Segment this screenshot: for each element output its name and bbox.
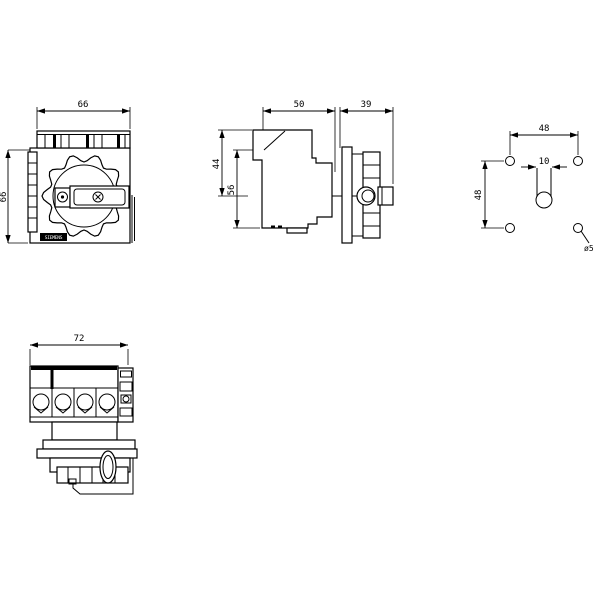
hub-screw-center: [61, 195, 64, 198]
front-view: 66 66: [0, 100, 135, 243]
dim-label-top-width: 72: [74, 334, 85, 344]
flange-plate-top: [37, 449, 137, 458]
top-view: 72: [30, 334, 137, 494]
side-body: [253, 130, 332, 228]
dim-label-pitch-v: 48: [474, 190, 484, 201]
brand-label: SIEMENS: [45, 235, 63, 241]
fixing-hole: [574, 157, 583, 166]
drawing-canvas: 66 66: [0, 0, 600, 600]
bottom-tab: [287, 228, 307, 233]
dim-label-mounting-height: 56: [227, 185, 237, 196]
drilling-pattern-view: 48 48 10 ø5: [474, 124, 594, 253]
fixing-hole: [506, 224, 515, 233]
dim-label-handle-axis: 44: [212, 159, 222, 170]
dim-label-front-height: 66: [0, 192, 9, 203]
fixing-hole: [506, 157, 515, 166]
dim-label-hole-diameter: ø5: [584, 244, 594, 253]
body-step: [52, 422, 117, 440]
handle-shaft: [357, 187, 375, 205]
handle-latch: [378, 187, 393, 205]
dimension-drawing: 66 66: [0, 0, 600, 600]
dim-label-depth-handle: 39: [361, 100, 372, 110]
foot-mark: [271, 226, 275, 229]
din-clip-strip: [28, 152, 37, 232]
dim-label-depth-body: 50: [294, 100, 305, 110]
shaft-hole: [536, 192, 552, 208]
side-view: 50 39 44 56: [212, 100, 393, 243]
terminal-block-divider-thick: [51, 370, 54, 389]
flange-plate: [342, 147, 352, 243]
flange-upper-band: [43, 440, 135, 449]
dim-label-slot-width: 10: [539, 157, 550, 167]
terminal-divider: [53, 134, 56, 148]
leader-line: [581, 231, 589, 243]
terminal-band: [37, 131, 130, 148]
terminal-divider: [117, 134, 120, 148]
dim-label-pitch-h: 48: [539, 124, 550, 134]
terminal-block-top-bar: [31, 366, 117, 370]
terminal-divider: [86, 134, 89, 148]
dim-label-front-width: 66: [78, 100, 89, 110]
foot-mark: [278, 226, 282, 229]
